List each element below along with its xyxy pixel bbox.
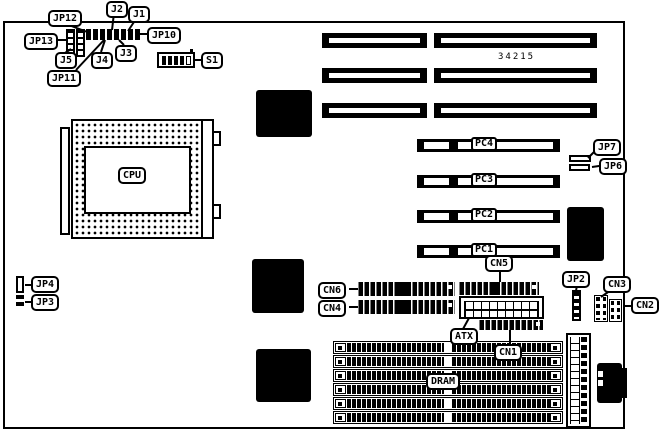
- label-j3: J3: [115, 45, 137, 62]
- label-cn3: CN3: [603, 276, 631, 293]
- label-j1: J1: [128, 6, 150, 23]
- label-jp7: JP7: [593, 139, 621, 156]
- pci-slot-label-pc3: PC3: [471, 173, 497, 187]
- label-j4: J4: [91, 52, 113, 69]
- label-cn4: CN4: [318, 300, 346, 317]
- label-jp4: JP4: [31, 276, 59, 293]
- pci-slot-label-pc4: PC4: [471, 137, 497, 151]
- label-cn1: CN1: [494, 344, 522, 361]
- motherboard-diagram: 34215 PC4 PC3 PC2 PC1 CPU: [0, 0, 663, 435]
- label-jp13: JP13: [24, 33, 58, 50]
- label-jp12: JP12: [48, 10, 82, 27]
- label-j2: J2: [106, 1, 128, 18]
- label-cn5: CN5: [485, 255, 513, 272]
- label-j5: J5: [55, 52, 77, 69]
- label-cn2: CN2: [631, 297, 659, 314]
- label-jp2: JP2: [562, 271, 590, 288]
- label-jp10: JP10: [147, 27, 181, 44]
- part-number: 34215: [498, 52, 535, 62]
- label-s1: S1: [201, 52, 223, 69]
- label-dram: DRAM: [426, 373, 460, 390]
- label-cn6: CN6: [318, 282, 346, 299]
- cpu-label: CPU: [118, 167, 146, 184]
- label-atx: ATX: [450, 328, 478, 345]
- label-jp11: JP11: [47, 70, 81, 87]
- label-jp6: JP6: [599, 158, 627, 175]
- pci-slot-label-pc2: PC2: [471, 208, 497, 222]
- label-jp3: JP3: [31, 294, 59, 311]
